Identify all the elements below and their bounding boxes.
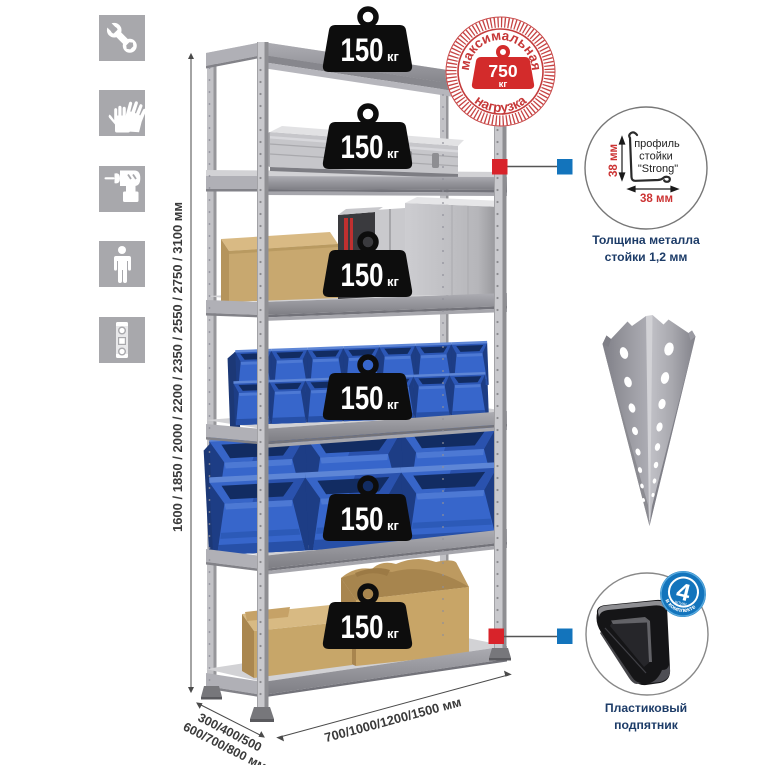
svg-text:стойки: стойки: [639, 151, 673, 163]
svg-text:стойки 1,2 мм: стойки 1,2 мм: [605, 250, 688, 264]
svg-text:1600 / 1850 / 2000 / 2200 / 23: 1600 / 1850 / 2000 / 2200 / 2350 / 2550 …: [170, 202, 185, 532]
svg-text:профиль: профиль: [634, 138, 680, 150]
svg-text:Пластиковый: Пластиковый: [605, 701, 687, 715]
svg-text:"Strong": "Strong": [638, 163, 678, 175]
svg-text:подпятник: подпятник: [614, 718, 679, 732]
svg-text:38 мм: 38 мм: [608, 144, 620, 177]
svg-text:Толщина металла: Толщина металла: [592, 233, 700, 247]
svg-text:кг: кг: [499, 79, 508, 90]
svg-text:38 мм: 38 мм: [640, 193, 673, 205]
svg-text:750: 750: [488, 61, 517, 81]
